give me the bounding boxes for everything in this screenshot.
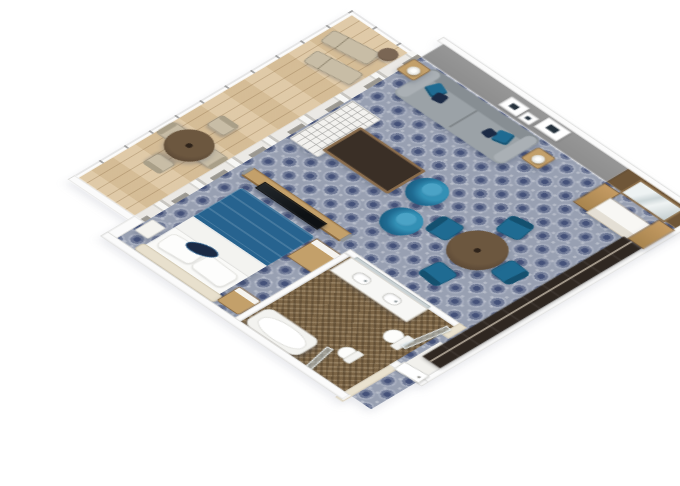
suite-floorplan-render — [0, 0, 680, 486]
table-lamp — [528, 153, 548, 165]
frame-art — [525, 116, 533, 121]
isometric-scene — [0, 10, 680, 486]
navy-throw-pillow — [430, 92, 449, 104]
frame-art — [545, 124, 560, 134]
teal-throw-pillow — [490, 129, 516, 145]
teal-throw-pillow — [424, 82, 448, 97]
sink — [349, 270, 374, 286]
navy-throw-pillow — [480, 127, 498, 138]
table-lamp — [404, 65, 424, 77]
frame-art — [508, 102, 520, 110]
sink — [380, 291, 405, 307]
